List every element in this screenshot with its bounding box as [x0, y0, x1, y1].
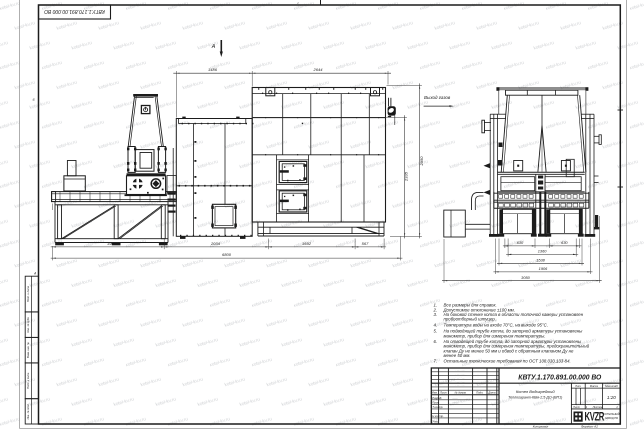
svg-text:б: б — [33, 98, 35, 102]
svg-text:· — · · —: · — · · — — [456, 378, 466, 380]
svg-text:· ·: · · — [477, 374, 479, 376]
svg-text:КВТУ.1.170.891.00.000 ВО: КВТУ.1.170.891.00.000 ВО — [44, 8, 105, 14]
svg-text:менее 50 мм.: менее 50 мм. — [444, 353, 471, 358]
svg-text:Инв. № подл.: Инв. № подл. — [26, 403, 30, 419]
svg-text:5.: 5. — [434, 329, 438, 334]
svg-text:6.: 6. — [434, 339, 438, 344]
svg-text:KVZR: KVZR — [585, 410, 605, 424]
svg-text:А: А — [211, 44, 216, 50]
svg-text:Остальные технические требован: Остальные технические требования по ОСТ … — [444, 359, 571, 364]
svg-text:Формат А2: Формат А2 — [581, 425, 598, 429]
svg-text:1960: 1960 — [107, 241, 117, 246]
svg-text:· ·: · · — [477, 381, 479, 383]
svg-text:6800: 6800 — [222, 252, 232, 257]
svg-text:· — · · —: · — · · — — [456, 385, 466, 387]
svg-text:Изм.: Изм. — [432, 391, 438, 395]
svg-text:манометр, прибор для измерения: манометр, прибор для измерения температу… — [444, 333, 546, 338]
svg-text:А: А — [33, 272, 36, 276]
svg-text:───: ─── — [451, 401, 458, 404]
svg-text:630: 630 — [561, 240, 568, 245]
svg-text:Теплогарант-КВм-2,5-ДО-(ВП1): Теплогарант-КВм-2,5-ДО-(ВП1) — [508, 395, 562, 399]
svg-text:Лит.: Лит. — [574, 384, 582, 388]
svg-text:· — · · —: · — · · — — [456, 374, 466, 376]
svg-text:630: 630 — [517, 240, 524, 245]
svg-text:4.: 4. — [434, 322, 438, 327]
svg-text:7.: 7. — [434, 359, 438, 364]
svg-text:3050: 3050 — [521, 275, 530, 280]
svg-text:Т.контр.: Т.контр. — [432, 405, 443, 409]
svg-text:Выход газов: Выход газов — [424, 95, 451, 100]
svg-text:Утв.: Утв. — [432, 419, 438, 423]
svg-text:2950: 2950 — [419, 156, 424, 167]
svg-text:Взам. инв. №: Взам. инв. № — [26, 342, 30, 358]
svg-text:пробоотборный штуцер.: пробоотборный штуцер. — [444, 317, 496, 322]
svg-text:1906: 1906 — [539, 266, 548, 271]
svg-text:Температура воды на входе 70°С: Температура воды на входе 70°С, на выход… — [444, 322, 549, 327]
svg-text:1360: 1360 — [538, 249, 547, 254]
svg-text:Лист: Лист — [439, 391, 448, 395]
svg-text:· — · · —: · — · · — — [456, 370, 466, 372]
svg-text:Котел Водогрейный: Котел Водогрейный — [516, 389, 555, 394]
svg-text:Масса: Масса — [590, 384, 598, 388]
svg-text:───: ─── — [451, 397, 458, 400]
svg-text:· ·: · · — [477, 378, 479, 380]
svg-text:Листов: Листов — [592, 405, 603, 409]
svg-text:Подп.: Подп. — [476, 391, 483, 395]
svg-text:1486: 1486 — [208, 67, 218, 72]
svg-text:ЗАВОД РФ: ЗАВОД РФ — [605, 416, 618, 420]
svg-text:3.: 3. — [434, 312, 438, 317]
svg-text:2644: 2644 — [313, 67, 324, 72]
svg-text:Масштаб: Масштаб — [605, 384, 618, 388]
svg-text:1:20: 1:20 — [607, 395, 616, 400]
svg-text:· ·: · · — [477, 385, 479, 387]
svg-text:Копировал: Копировал — [533, 425, 549, 429]
svg-text:Дата: Дата — [487, 391, 496, 395]
svg-text:Пров.: Пров. — [432, 400, 439, 404]
svg-text:№ докум.: № докум. — [455, 391, 467, 395]
svg-text:Н.контр.: Н.контр. — [432, 414, 444, 418]
svg-text:2034: 2034 — [210, 241, 221, 246]
svg-text:КВТУ.1.170.891.00.000 ВО: КВТУ.1.170.891.00.000 ВО — [518, 373, 601, 382]
svg-text:· ·: · · — [477, 370, 479, 372]
svg-text:Разраб.: Разраб. — [432, 396, 442, 400]
svg-text:2: 2 — [296, 1, 299, 5]
svg-text:1692: 1692 — [302, 241, 312, 246]
svg-text:Подп. и дата: Подп. и дата — [26, 285, 30, 302]
svg-text:1538: 1538 — [536, 257, 545, 262]
svg-text:Лист: Лист — [572, 405, 581, 409]
svg-text:КОТЕЛЬНЫЙ: КОТЕЛЬНЫЙ — [603, 412, 619, 416]
svg-text:2335: 2335 — [404, 171, 409, 182]
svg-text:· — · · —: · — · · — — [456, 381, 466, 383]
svg-text:Подп. и дата: Подп. и дата — [26, 372, 30, 389]
svg-text:Инв. № дубл.: Инв. № дубл. — [26, 316, 30, 332]
svg-text:567: 567 — [362, 241, 369, 246]
